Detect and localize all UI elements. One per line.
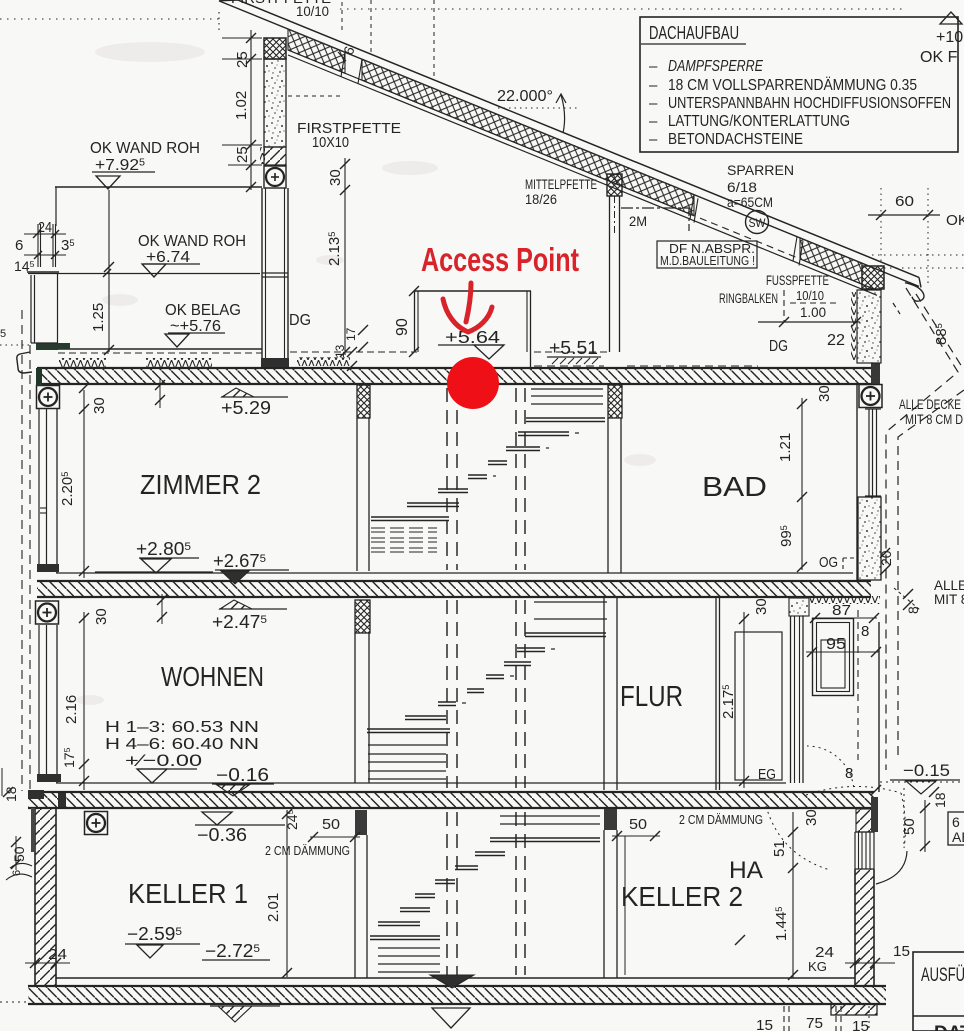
svg-text:MIT 8 CM D: MIT 8 CM D	[905, 412, 963, 427]
svg-text:−0.16: −0.16	[216, 765, 269, 785]
svg-text:MIT 8: MIT 8	[934, 592, 964, 607]
svg-text:MITTELPFETTE: MITTELPFETTE	[525, 177, 597, 192]
svg-text:1.21: 1.21	[777, 433, 794, 462]
svg-text:+5.29: +5.29	[221, 398, 271, 418]
svg-text:18 CM VOLLSPARRENDÄMMUNG 0.35: 18 CM VOLLSPARRENDÄMMUNG 0.35	[668, 76, 917, 94]
svg-text:10X10: 10X10	[312, 134, 349, 151]
svg-text:2.01: 2.01	[265, 893, 282, 922]
svg-text:18: 18	[932, 792, 948, 808]
svg-text:6/18: 6/18	[727, 179, 757, 195]
svg-text:2M: 2M	[629, 213, 647, 229]
svg-text:24: 24	[38, 219, 52, 236]
svg-text:M.D.BAULEITUNG !: M.D.BAULEITUNG !	[660, 254, 755, 268]
svg-text:BAD: BAD	[702, 471, 767, 502]
svg-text:−2.595: −2.595	[127, 924, 182, 944]
svg-text:22: 22	[827, 332, 845, 349]
svg-text:50: 50	[629, 816, 647, 833]
svg-text:AB: AB	[952, 829, 964, 845]
svg-text:LATTUNG/KONTERLATTUNG: LATTUNG/KONTERLATTUNG	[668, 113, 850, 130]
svg-text:+10: +10	[936, 29, 963, 46]
svg-text:HA: HA	[729, 857, 763, 884]
svg-text:−0.15: −0.15	[903, 761, 950, 780]
svg-text:13: 13	[333, 344, 347, 358]
svg-text:ALLE DECKE: ALLE DECKE	[899, 397, 961, 412]
svg-text:–: –	[649, 95, 658, 112]
svg-text:EG: EG	[758, 766, 776, 783]
svg-text:10/10: 10/10	[296, 3, 329, 19]
svg-text:30: 30	[93, 608, 110, 625]
svg-text:+5.51: +5.51	[549, 338, 598, 358]
svg-text:+0−: +0−	[0, 766, 3, 783]
svg-text:8: 8	[845, 765, 853, 782]
svg-text:OK: OK	[946, 212, 964, 229]
svg-text:Access Point: Access Point	[421, 241, 579, 278]
svg-text:ZIMMER 2: ZIMMER 2	[140, 469, 261, 500]
svg-text:2 CM DÄMMUNG: 2 CM DÄMMUNG	[679, 813, 763, 827]
svg-text:OG: OG	[819, 554, 838, 571]
svg-text:+2.805: +2.805	[136, 539, 191, 559]
svg-text:–: –	[649, 58, 658, 75]
svg-text:KELLER 2: KELLER 2	[621, 881, 743, 912]
svg-text:30: 30	[753, 598, 770, 615]
svg-text:UNTERSPANNBAHN HOCHDIFFUSIONSO: UNTERSPANNBAHN HOCHDIFFUSIONSOFFEN	[668, 95, 951, 112]
svg-text:8: 8	[905, 606, 921, 614]
svg-text:2 CM DÄMMUNG: 2 CM DÄMMUNG	[265, 844, 350, 858]
svg-text:22.000°: 22.000°	[497, 88, 553, 105]
svg-text:25: 25	[234, 51, 251, 68]
svg-text:KG: KG	[808, 959, 827, 974]
svg-text:15: 15	[893, 943, 910, 960]
svg-text:RINGBALKEN: RINGBALKEN	[719, 290, 778, 306]
svg-text:SPARREN: SPARREN	[727, 162, 794, 178]
svg-text:–: –	[649, 77, 658, 94]
svg-text:OK F: OK F	[920, 49, 958, 66]
svg-text:AUSFÜ: AUSFÜ	[921, 965, 964, 986]
svg-text:WOHNEN: WOHNEN	[161, 661, 264, 692]
svg-text:FLUR: FLUR	[620, 681, 683, 713]
svg-text:–: –	[649, 131, 658, 148]
svg-text:a=65CM: a=65CM	[727, 194, 773, 210]
svg-text:50: 50	[901, 818, 918, 835]
svg-text:SW: SW	[749, 216, 767, 230]
svg-text:25: 25	[234, 146, 251, 163]
svg-text:51: 51	[771, 840, 788, 857]
svg-text:–: –	[649, 113, 658, 130]
svg-text:6: 6	[952, 814, 960, 830]
svg-text:−2.725: −2.725	[205, 941, 260, 961]
svg-text:DATUM: DATUM	[934, 1023, 964, 1031]
svg-text:95: 95	[826, 636, 846, 653]
svg-text:24: 24	[48, 946, 67, 963]
svg-text:10/10: 10/10	[796, 288, 824, 303]
svg-text:75: 75	[806, 1015, 823, 1031]
svg-text:30: 30	[327, 169, 344, 186]
svg-text:30: 30	[803, 809, 820, 826]
svg-text:DACHAUFBAU: DACHAUFBAU	[649, 23, 739, 43]
svg-text:FUSSPFETTE: FUSSPFETTE	[766, 272, 829, 288]
svg-text:87: 87	[832, 602, 851, 619]
svg-text:60: 60	[895, 193, 914, 210]
svg-text:KELLER 1: KELLER 1	[128, 878, 248, 909]
svg-text:6: 6	[11, 870, 23, 876]
svg-text:−0.36: −0.36	[197, 825, 247, 845]
svg-text:5: 5	[0, 328, 6, 340]
svg-text:90: 90	[394, 318, 411, 336]
svg-text:ALLE I: ALLE I	[934, 578, 964, 593]
svg-text:15: 15	[852, 1018, 869, 1031]
svg-text:H 4–6: 60.40 NN: H 4–6: 60.40 NN	[105, 736, 259, 753]
svg-text:1.25: 1.25	[90, 303, 107, 332]
svg-text:8: 8	[861, 623, 869, 640]
svg-text:+2.675: +2.675	[213, 551, 266, 571]
svg-text:6: 6	[15, 237, 23, 254]
svg-text:1.00: 1.00	[800, 304, 826, 320]
svg-text:+⁄−0.00: +⁄−0.00	[125, 751, 202, 770]
svg-text:+2.475: +2.475	[212, 612, 267, 632]
svg-text:2.16: 2.16	[63, 695, 80, 724]
svg-text:30: 30	[91, 397, 108, 414]
svg-text:50: 50	[322, 816, 340, 833]
svg-text:BETONDACHSTEINE: BETONDACHSTEINE	[668, 131, 803, 148]
svg-text:DAMPFSPERRE: DAMPFSPERRE	[668, 58, 763, 75]
svg-text:OK WAND ROH: OK WAND ROH	[90, 140, 200, 157]
svg-text:18/26: 18/26	[525, 192, 557, 207]
svg-text:50: 50	[11, 846, 27, 862]
svg-text:H 1–3: 60.53 NN: H 1–3: 60.53 NN	[105, 719, 259, 736]
svg-text:15: 15	[756, 1017, 773, 1031]
svg-text:OK BELAG: OK BELAG	[165, 302, 241, 319]
svg-text:DG: DG	[769, 338, 788, 355]
svg-text:OK WAND ROH: OK WAND ROH	[138, 233, 246, 250]
svg-text:17: 17	[344, 327, 358, 341]
svg-text:1.02: 1.02	[233, 91, 250, 120]
svg-text:30: 30	[816, 385, 833, 402]
svg-text:DG: DG	[289, 312, 311, 329]
